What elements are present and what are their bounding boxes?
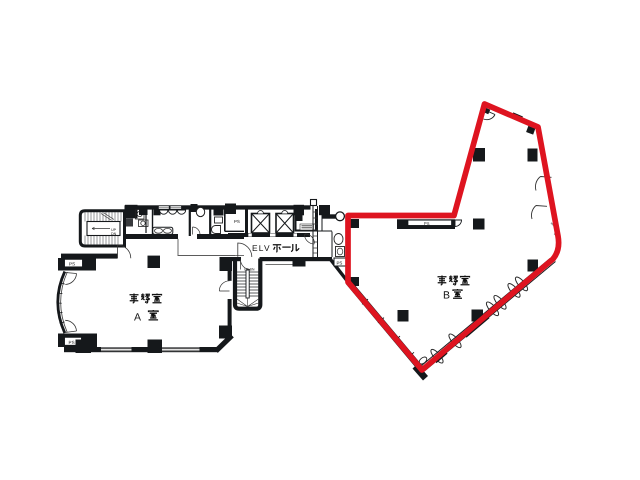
svg-text:PS: PS [337, 261, 343, 266]
svg-text:UP DN: UP DN [244, 268, 255, 272]
svg-text:PS: PS [69, 262, 75, 267]
svg-text:PS: PS [69, 340, 75, 345]
svg-text:ELV: ELV [252, 243, 271, 253]
svg-text:PS: PS [424, 221, 430, 226]
svg-text:A: A [134, 312, 141, 324]
svg-text:PS: PS [234, 219, 240, 224]
svg-text:B: B [443, 290, 450, 302]
svg-text:DN: DN [111, 232, 117, 236]
